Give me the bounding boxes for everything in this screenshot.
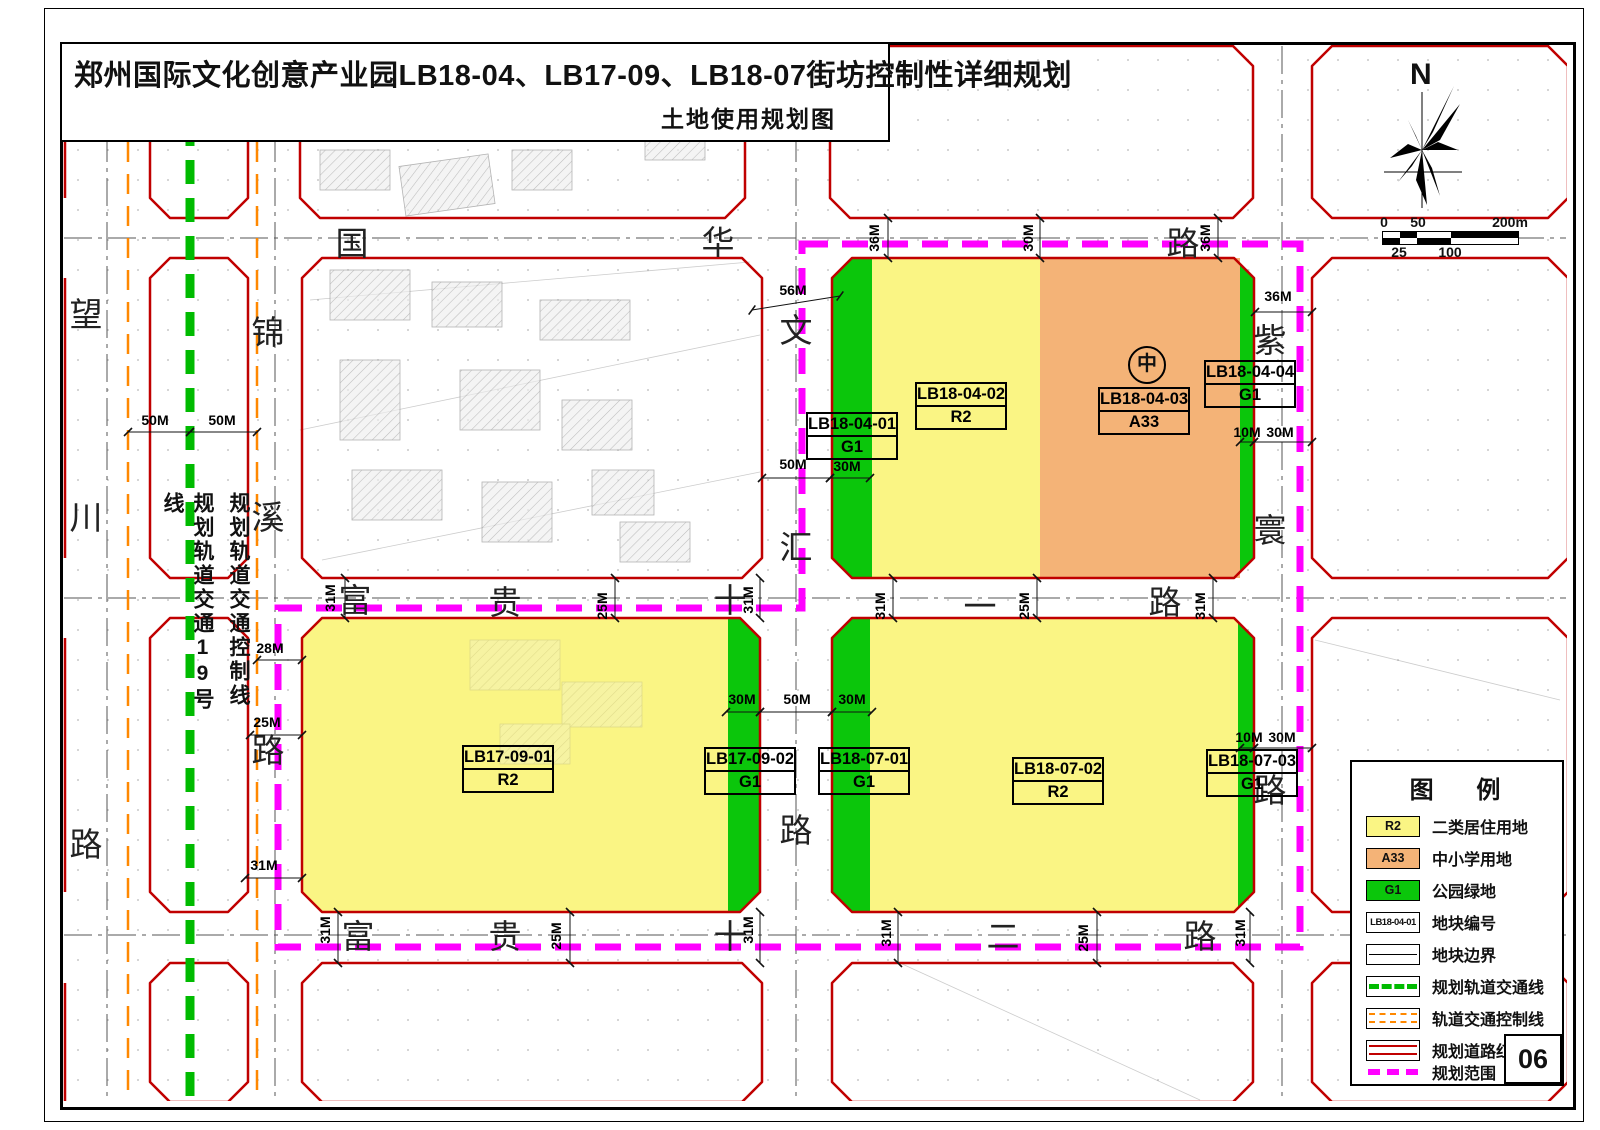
dim-label: 31M <box>322 584 338 611</box>
dim-label: 36M <box>866 224 882 251</box>
parcel-label: LB18-04-01 G1 <box>806 412 898 460</box>
plan-subtitle: 土地使用规划图 <box>62 94 888 134</box>
legend-item-rail-line: 规划轨道交通线 <box>1366 974 1544 998</box>
road-name-char: 富 <box>339 574 372 622</box>
road-name-char: 华 <box>702 216 735 264</box>
dim-label: 50M <box>779 456 806 472</box>
dim-label: 31M <box>878 919 894 946</box>
dim-label: 31M <box>317 916 333 943</box>
dim-label: 30M <box>1268 729 1295 745</box>
legend-title: 图 例 <box>1352 762 1562 807</box>
road-name-char: 富 <box>342 910 375 958</box>
dim-label: 31M <box>872 592 888 619</box>
road-name-char: 路 <box>1149 576 1182 624</box>
dim-label: 25M <box>1075 924 1091 951</box>
dim-label: 50M <box>208 412 235 428</box>
road-name-char: 溪 <box>252 491 285 539</box>
legend-swatch-rail-line <box>1366 976 1420 997</box>
dim-label: 28M <box>256 640 283 656</box>
legend-item-rail-control: 轨道交通控制线 <box>1366 1006 1544 1030</box>
scale-bar-strip <box>1382 231 1519 245</box>
parcel-label: LB18-07-03 G1 <box>1206 749 1298 797</box>
parcel-label: LB17-09-02 G1 <box>704 747 796 795</box>
dim-label: 30M <box>833 458 860 474</box>
scale-tick-200: 200m <box>1492 214 1528 230</box>
school-symbol: 中 <box>1128 346 1166 384</box>
parcel-fill-lb18-04-04 <box>1240 264 1254 572</box>
road-name-char: 一 <box>964 580 997 628</box>
legend-item-r2: R2 二类居住用地 <box>1366 814 1528 838</box>
road-name-char: 国 <box>336 217 369 265</box>
scale-tick-50: 50 <box>1410 214 1426 230</box>
road-name-char: 路 <box>1167 217 1200 265</box>
dim-label: 25M <box>253 714 280 730</box>
dim-label: 10M <box>1233 424 1260 440</box>
legend-swatch-parcel-boundary <box>1366 944 1420 965</box>
legend-item-g1: G1 公园绿地 <box>1366 878 1496 902</box>
dim-label: 31M <box>1192 592 1208 619</box>
road-name-char: 路 <box>780 804 813 852</box>
road-red-lines <box>65 46 1567 1101</box>
dim-label: 36M <box>1264 288 1291 304</box>
road-name-char: 路 <box>252 724 285 772</box>
scale-tick-25: 25 <box>1391 244 1407 260</box>
legend-item-parcel-code: LB18-04-01 地块编号 <box>1366 910 1496 934</box>
road-name-char: 望 <box>70 288 103 336</box>
road-name-char: 贵 <box>489 910 522 958</box>
parcel-label: LB18-07-02 R2 <box>1012 757 1104 805</box>
north-arrow <box>1384 86 1462 208</box>
scale-bar: 0 50 200m 25 100 <box>1382 214 1542 256</box>
legend-item-parcel-boundary: 地块边界 <box>1366 942 1496 966</box>
road-centerlines <box>64 46 1566 1101</box>
plan-title: 郑州国际文化创意产业园LB18-04、LB17-09、LB18-07街坊控制性详… <box>62 44 888 94</box>
dim-label: 30M <box>1020 224 1036 251</box>
road-name-char: 汇 <box>780 521 813 569</box>
dim-label: 36M <box>1197 224 1213 251</box>
road-name-char: 路 <box>70 818 103 866</box>
scale-tick-0: 0 <box>1380 214 1388 230</box>
dim-label: 30M <box>1266 424 1293 440</box>
dim-label: 31M <box>1232 919 1248 946</box>
road-name-char: 寰 <box>1254 504 1287 552</box>
dim-label: 25M <box>548 922 564 949</box>
scale-tick-100: 100 <box>1438 244 1461 260</box>
parcel-label: LB17-09-01 R2 <box>462 745 554 793</box>
rail-line19-label: 规划轨道交通19号线 <box>157 492 217 712</box>
dim-label: 10M <box>1235 729 1262 745</box>
north-label: N <box>1410 58 1432 92</box>
road-name-char: 路 <box>1184 910 1217 958</box>
rail-control-label: 规划轨道交通控制线 <box>223 492 253 712</box>
legend-swatch-rail-control <box>1366 1008 1420 1029</box>
legend-swatch-a33: A33 <box>1366 848 1420 869</box>
dim-label: 30M <box>838 691 865 707</box>
land-use-map-canvas <box>63 45 1567 1101</box>
plan-sheet: 郑州国际文化创意产业园LB18-04、LB17-09、LB18-07街坊控制性详… <box>0 0 1600 1130</box>
dim-label: 25M <box>1016 592 1032 619</box>
legend-swatch-g1: G1 <box>1366 880 1420 901</box>
dim-label: 31M <box>740 586 756 613</box>
legend-item-a33: A33 中小学用地 <box>1366 846 1512 870</box>
road-name-char: 紫 <box>1254 314 1287 362</box>
legend-swatch-parcel-code: LB18-04-01 <box>1366 912 1420 933</box>
road-name-char: 文 <box>780 304 813 352</box>
dim-label: 56M <box>779 282 806 298</box>
road-name-char: 锦 <box>252 306 285 354</box>
dim-label: 30M <box>728 691 755 707</box>
title-block: 郑州国际文化创意产业园LB18-04、LB17-09、LB18-07街坊控制性详… <box>60 42 890 142</box>
road-name-char: 川 <box>70 491 103 539</box>
dim-label: 31M <box>250 857 277 873</box>
legend-swatch-r2: R2 <box>1366 816 1420 837</box>
parcel-fills <box>302 258 1254 912</box>
legend-swatch-road-redline <box>1366 1040 1420 1061</box>
dim-label: 50M <box>783 691 810 707</box>
parcel-label: LB18-07-01 G1 <box>818 747 910 795</box>
dim-label: 50M <box>141 412 168 428</box>
dim-label: 25M <box>594 592 610 619</box>
legend-swatch-plan-boundary <box>1366 1062 1420 1083</box>
page-number: 06 <box>1504 1034 1562 1084</box>
parcel-label: LB18-04-04 G1 <box>1204 360 1296 408</box>
road-name-char: 贵 <box>489 576 522 624</box>
dim-label: 31M <box>740 916 756 943</box>
parcel-label: LB18-04-02 R2 <box>915 382 1007 430</box>
legend-item-plan-boundary: 规划范围 <box>1366 1060 1496 1084</box>
road-name-char: 二 <box>987 910 1020 958</box>
parcel-label: LB18-04-03 A33 <box>1098 387 1190 435</box>
